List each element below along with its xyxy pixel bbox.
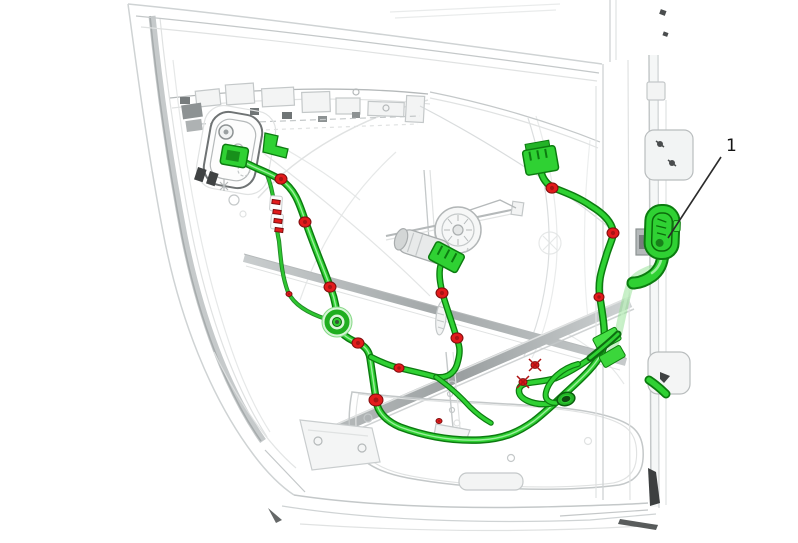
fastener-clip (394, 364, 404, 373)
diagram-canvas: 1 (0, 0, 798, 543)
fastener-clip (607, 228, 619, 238)
fastener-clip (273, 209, 281, 214)
fastener-clip (275, 227, 283, 232)
fastener-clip (369, 394, 383, 406)
fastener-clip (274, 218, 282, 223)
bottom-right-shadow-strip (618, 519, 658, 530)
harness-connector-upper (521, 139, 559, 175)
harness-connector-latch (220, 144, 249, 168)
fastener-clip (272, 199, 280, 204)
door-check-bracket (645, 130, 693, 180)
door-structure (128, 0, 693, 531)
fastener-clip (451, 333, 463, 343)
front-door-edge (128, 4, 296, 495)
fastener-clip (286, 291, 292, 296)
rear-edge-bracket-upper (647, 82, 665, 100)
fastener-clip (352, 338, 364, 348)
callout-label: 1 (726, 136, 737, 156)
fastener-clip (529, 359, 541, 371)
door-harness-diagram: 1 (0, 0, 798, 543)
fastener-clip (594, 293, 604, 302)
window-frame-top (128, 4, 602, 81)
harness-bracket-green (263, 133, 288, 158)
panel-handle-cutout (459, 473, 523, 490)
fastener-clip (324, 282, 336, 292)
fastener-clip (546, 183, 558, 193)
harness-grommet (322, 307, 352, 337)
fastener-clip (436, 418, 442, 423)
harness-connector-loop-end (556, 390, 577, 407)
bottom-left-shadow (268, 508, 282, 523)
bottom-left-corner-plate (300, 420, 380, 470)
fastener-clip (299, 217, 311, 227)
fastener-clip (275, 174, 287, 184)
fastener-clip (436, 288, 448, 298)
